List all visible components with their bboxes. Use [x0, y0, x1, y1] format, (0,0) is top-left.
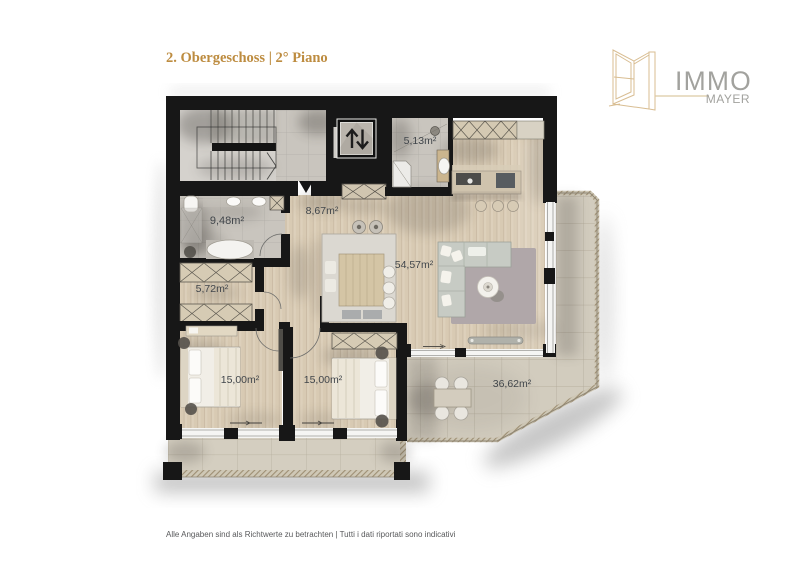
- svg-text:15,00m²: 15,00m²: [221, 374, 260, 386]
- svg-text:5,13m²: 5,13m²: [404, 135, 437, 147]
- svg-text:5,72m²: 5,72m²: [196, 283, 229, 295]
- svg-text:36,62m²: 36,62m²: [493, 378, 532, 390]
- svg-text:2. Obergeschoss | 2° Piano: 2. Obergeschoss | 2° Piano: [166, 50, 328, 66]
- svg-text:8,67m²: 8,67m²: [306, 205, 339, 217]
- svg-text:15,00m²: 15,00m²: [304, 374, 343, 386]
- svg-text:Alle Angaben sind als Richtwer: Alle Angaben sind als Richtwerte zu betr…: [166, 530, 456, 539]
- svg-text:54,57m²: 54,57m²: [395, 259, 434, 271]
- svg-text:9,48m²: 9,48m²: [210, 215, 245, 227]
- svg-text:MAYER: MAYER: [706, 92, 750, 106]
